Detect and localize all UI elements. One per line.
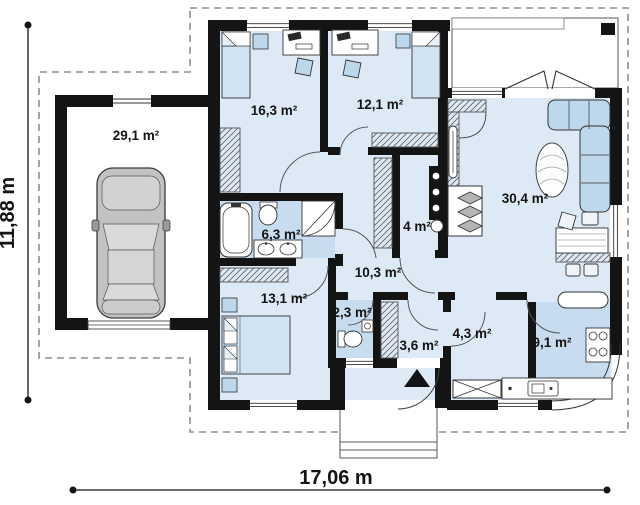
terrace [452,18,618,88]
fridge-icon [558,292,608,308]
label-kitchen: 9,1 m² [532,335,572,350]
label-bathroom: 6,3 m² [261,227,301,242]
wardrobe-entry [381,302,398,358]
floor-plan-drawing: 29,1 m² 16,3 m² 12,1 m² 30,4 m² 6,3 m² 4… [0,0,640,505]
car-icon [92,168,170,318]
label-bedroom3: 13,1 m² [261,291,308,306]
wardrobe-bedroom1 [220,128,240,192]
wardrobe-hallway [374,158,392,248]
label-corridor: 4,3 m² [452,326,492,341]
toilet-icon [259,202,277,225]
kitchen-window [498,400,538,410]
living-top-window [452,88,502,98]
nightstand-icon [396,34,410,48]
label-bedroom2: 12,1 m² [357,97,404,112]
chair-icon [584,264,598,276]
wardrobe-corridor-x [453,380,501,398]
nightstand-icon [253,34,268,49]
nightstand-icon [222,378,237,392]
wardrobe-bedroom2 [372,133,438,147]
desk-icon [332,30,378,55]
label-utility: 4 m² [403,219,431,234]
stove-icon [586,328,610,362]
label-living: 30,4 m² [502,191,549,206]
desk-icon [283,30,320,55]
living-right-window [610,205,622,257]
chair-icon [582,212,598,225]
dimension-width-label: 17,06 m [299,467,372,489]
chair-icon [343,60,361,78]
double-sink-icon [254,240,302,258]
wardrobe-bedroom3 [220,268,288,282]
kitchen-island [556,253,610,262]
label-bedroom1: 16,3 m² [251,103,298,118]
label-entry: 3,6 m² [399,338,439,353]
label-hallway: 10,3 m² [355,265,402,280]
wc-window [346,358,374,368]
boiler-pump [431,220,443,232]
chair-icon [295,58,313,76]
label-wc: 2,3 m² [332,305,372,320]
bedroom2-window [368,20,412,31]
label-garage: 29,1 m² [113,128,160,143]
terrace-step [452,18,564,29]
bedroom3-window [250,400,297,410]
terrace-column [601,23,615,35]
dimension-height-label: 11,88 m [0,177,19,249]
shower-icon [302,201,335,236]
dimension-width: 17,06 m [70,467,611,494]
garage-window [113,95,151,107]
bathtub-icon [220,203,252,257]
nightstand-icon [222,298,237,312]
wc-toilet-icon [344,331,362,347]
rug-icon [536,143,568,197]
chair-icon [566,264,580,276]
kitchen-counter [502,378,612,399]
bedroom1-window [247,20,289,31]
dimension-height: 11,88 m [0,22,32,404]
firewood-icon [458,192,482,232]
floor-plan-page: 29,1 m² 16,3 m² 12,1 m² 30,4 m² 6,3 m² 4… [0,0,640,505]
dining-table-icon [556,228,608,253]
wc-sink-icon [362,320,373,332]
